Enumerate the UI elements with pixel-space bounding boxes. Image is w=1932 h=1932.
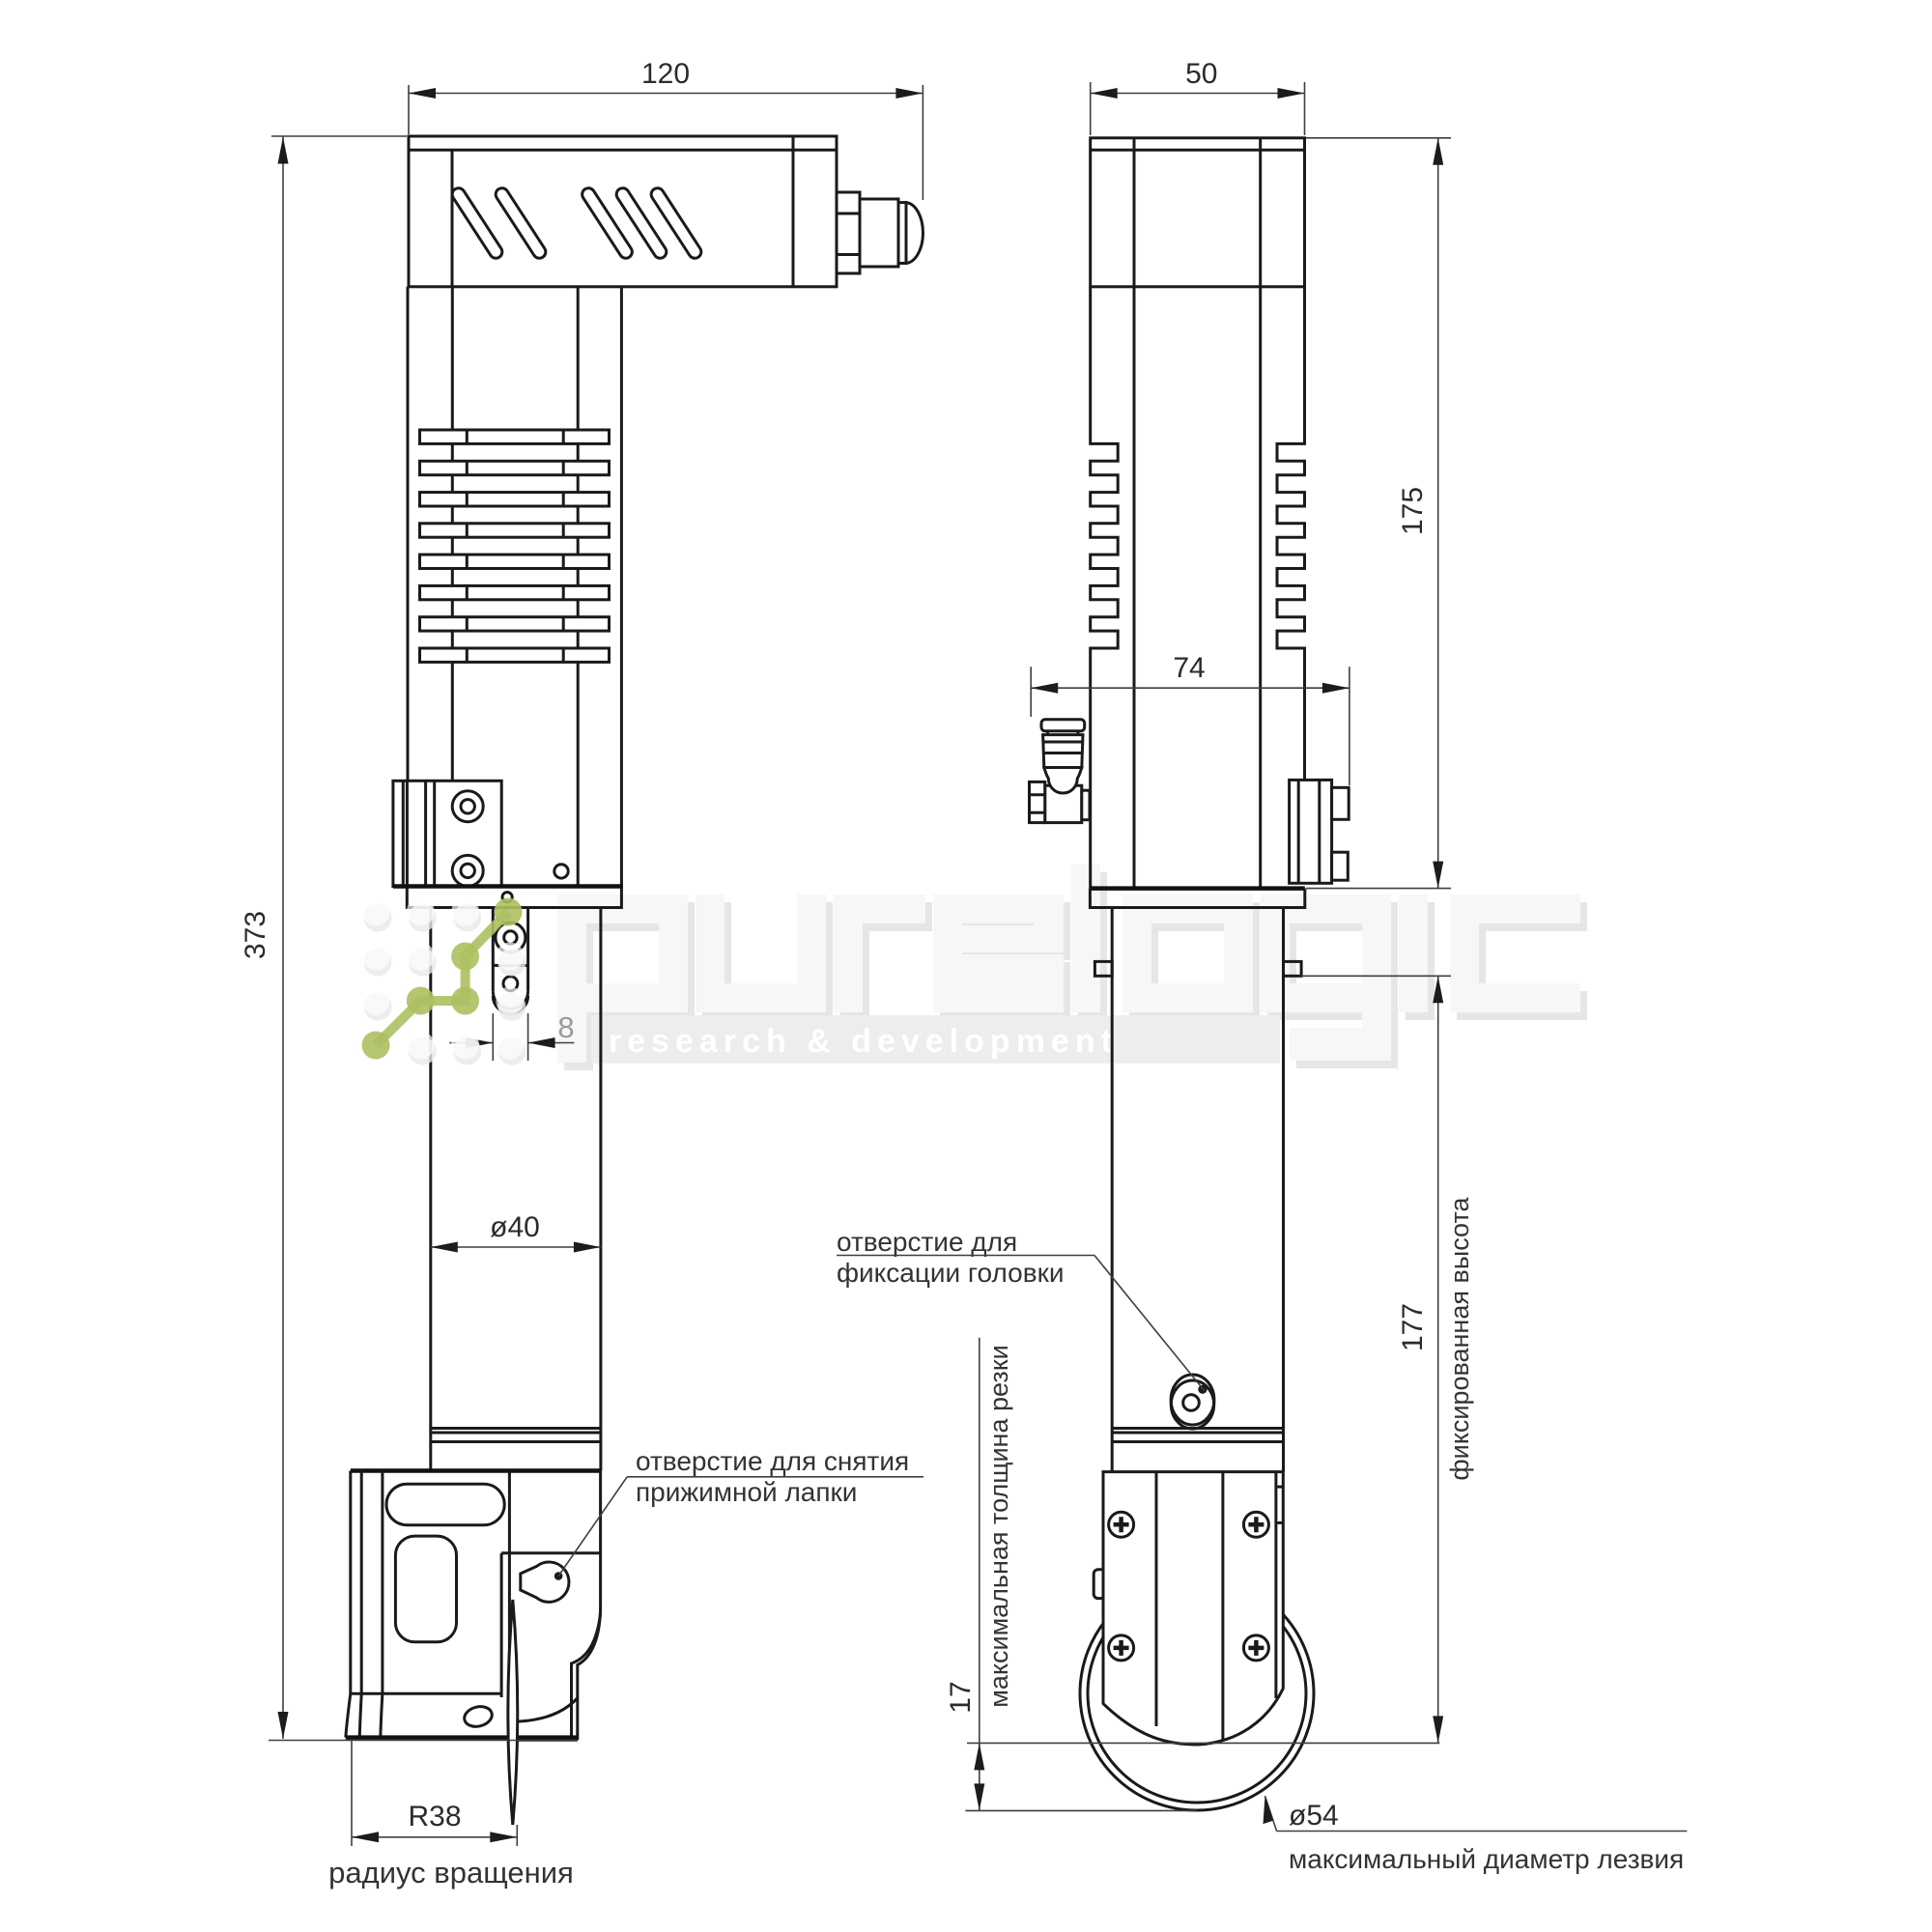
svg-text:120: 120 [641, 58, 690, 90]
svg-text:отверстие для: отверстие для [837, 1227, 1017, 1257]
svg-text:отверстие для снятия: отверстие для снятия [636, 1446, 909, 1476]
svg-text:максимальная толщина резки: максимальная толщина резки [984, 1345, 1013, 1707]
svg-text:74: 74 [1173, 652, 1205, 684]
svg-text:8: 8 [557, 1010, 574, 1044]
svg-text:research & development: research & development [609, 1023, 1118, 1060]
svg-text:ø40: ø40 [490, 1211, 540, 1243]
svg-text:радиус вращения: радиус вращения [328, 1856, 574, 1889]
svg-text:50: 50 [1185, 58, 1217, 90]
svg-text:максимальный диаметр лезвия: максимальный диаметр лезвия [1289, 1844, 1684, 1874]
svg-text:фиксации головки: фиксации головки [837, 1258, 1064, 1288]
svg-text:прижимной лапки: прижимной лапки [636, 1477, 857, 1507]
svg-text:175: 175 [1397, 487, 1429, 535]
svg-text:фиксированная высота: фиксированная высота [1445, 1196, 1474, 1480]
svg-text:ø54: ø54 [1289, 1800, 1339, 1832]
svg-text:177: 177 [1397, 1303, 1429, 1351]
svg-text:373: 373 [240, 911, 271, 959]
svg-text:17: 17 [945, 1681, 977, 1713]
svg-text:R38: R38 [408, 1801, 461, 1833]
